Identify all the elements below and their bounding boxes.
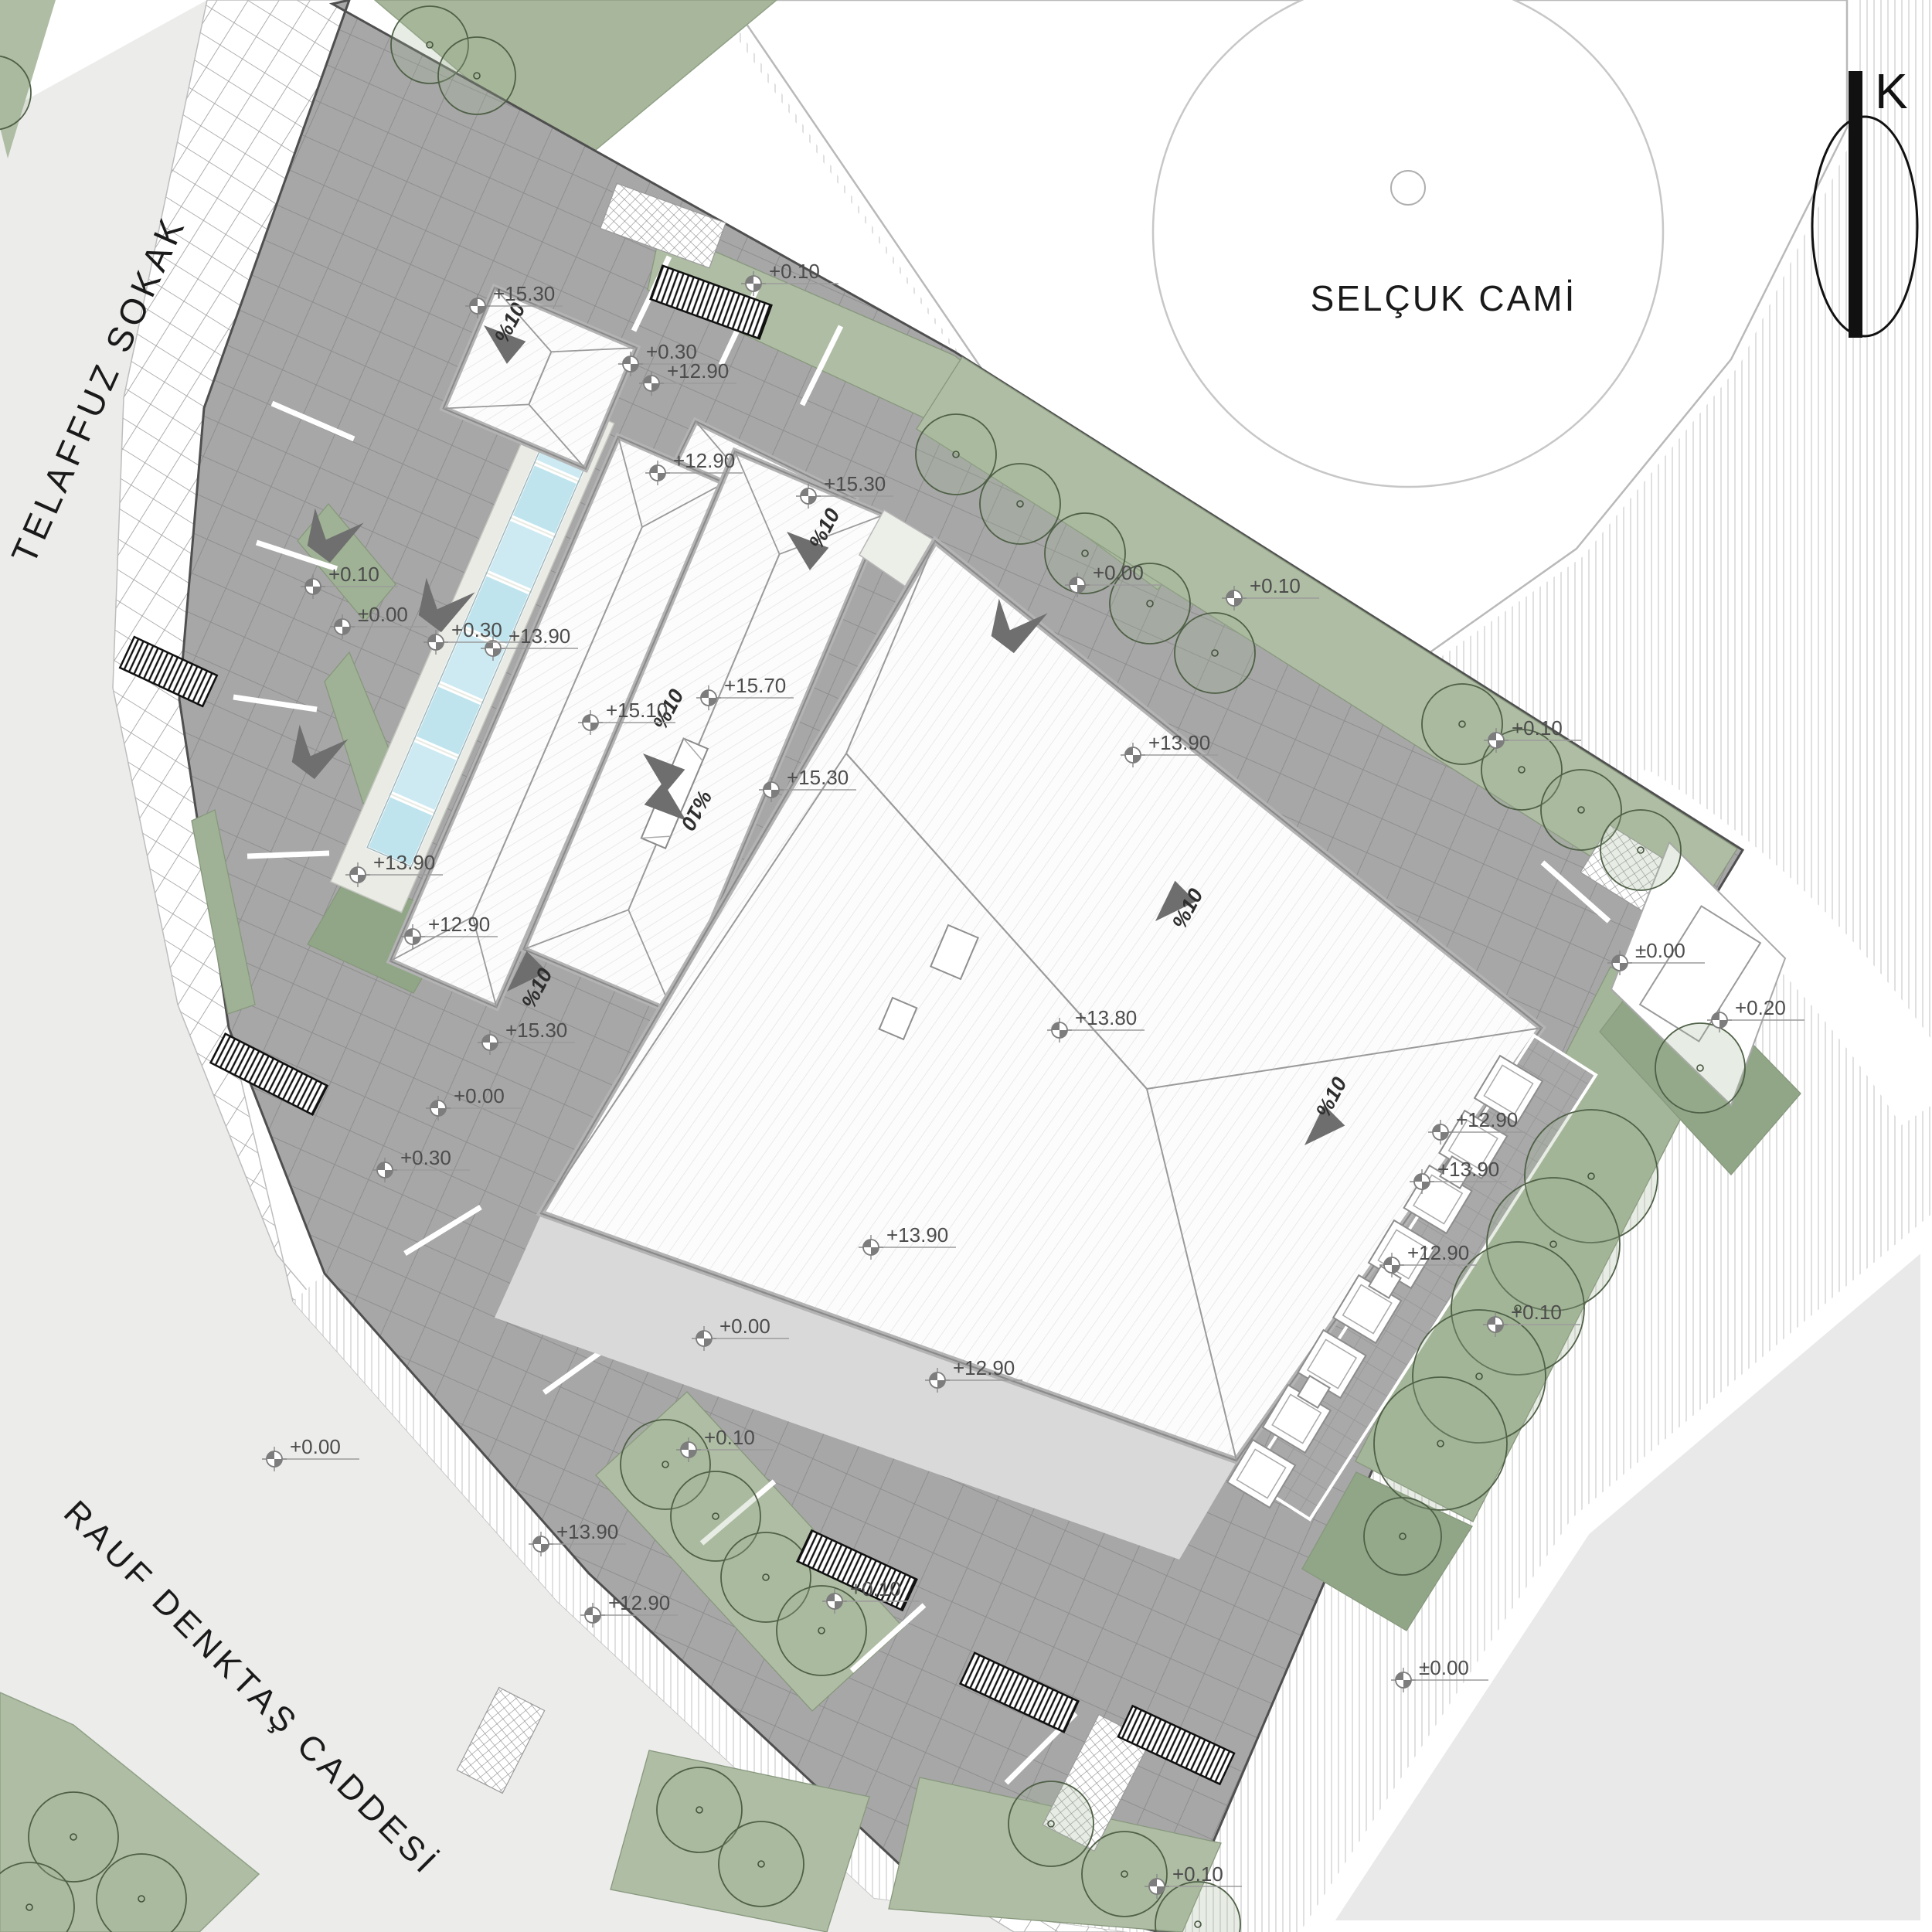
paving-joint	[247, 853, 329, 856]
tree	[1364, 1498, 1441, 1575]
elevation-label: +0.30	[451, 618, 502, 641]
elevation-label: +12.90	[673, 449, 735, 472]
elevation-label: +0.00	[719, 1315, 770, 1338]
elevation-label: +13.90	[509, 624, 570, 648]
elevation-label: ±0.00	[1419, 1656, 1469, 1679]
elevation-label: +0.00	[1093, 561, 1144, 584]
elevation-label: +13.90	[886, 1223, 948, 1247]
elevation-label: +15.30	[505, 1019, 567, 1042]
elevation-label: +0.30	[400, 1146, 451, 1169]
elevation-label: +12.90	[428, 913, 490, 936]
tree	[1175, 613, 1255, 693]
tree	[438, 37, 515, 114]
elevation-label: +15.10	[606, 699, 668, 722]
elevation-label: +15.30	[824, 472, 886, 495]
elevation-label: +12.90	[1407, 1241, 1469, 1264]
tree	[980, 464, 1060, 544]
elevation-label: +0.10	[704, 1426, 755, 1449]
mosque-dome-center	[1391, 171, 1425, 205]
elevation-label: +13.90	[1148, 731, 1210, 754]
north-label: K	[1875, 63, 1908, 119]
elevation-label: +15.70	[724, 674, 786, 697]
elevation-label: +0.10	[328, 563, 379, 586]
tree	[1600, 810, 1681, 890]
elevation-label: +0.10	[1511, 1301, 1562, 1324]
elevation-label: +13.90	[373, 851, 435, 874]
elevation-label: +0.20	[1735, 996, 1786, 1019]
mosque-label: SELÇUK CAMİ	[1311, 278, 1577, 318]
site-plan-page: %10%10%10%10%10%10%10 +0.10+0.30+12.90+1…	[0, 0, 1932, 1932]
elevation-label: ±0.00	[1635, 939, 1685, 962]
tree	[719, 1821, 804, 1906]
mosque-dome	[1153, 0, 1663, 487]
elevation-label: +12.90	[1456, 1108, 1518, 1131]
elevation-label: +0.10	[1512, 716, 1563, 740]
elevation-label: +12.90	[608, 1591, 670, 1614]
elevation-label: +13.90	[1437, 1158, 1499, 1181]
tree	[1082, 1832, 1167, 1917]
tree	[1009, 1781, 1094, 1866]
elevation-label: +12.90	[667, 359, 729, 383]
elevation-label: +0.10	[1250, 574, 1301, 597]
elevation-label: +0.10	[1172, 1862, 1223, 1886]
elevation-label: +15.30	[493, 282, 555, 305]
tree	[916, 414, 996, 495]
elevation-label: +0.00	[290, 1435, 341, 1458]
elevation-label: +13.90	[556, 1520, 618, 1543]
elevation-label: +12.90	[953, 1356, 1015, 1379]
elevation-label: +0.10	[769, 260, 820, 283]
elevation-label: +15.30	[787, 766, 849, 789]
elevation-label: +0.10	[850, 1577, 901, 1600]
tree	[1655, 1023, 1745, 1113]
elevation-label: +13.80	[1075, 1006, 1137, 1029]
elevation-label: +0.00	[454, 1084, 505, 1107]
elevation-label: ±0.00	[358, 603, 408, 626]
site-plan-canvas: %10%10%10%10%10%10%10 +0.10+0.30+12.90+1…	[0, 0, 1932, 1932]
tree	[1374, 1377, 1507, 1510]
